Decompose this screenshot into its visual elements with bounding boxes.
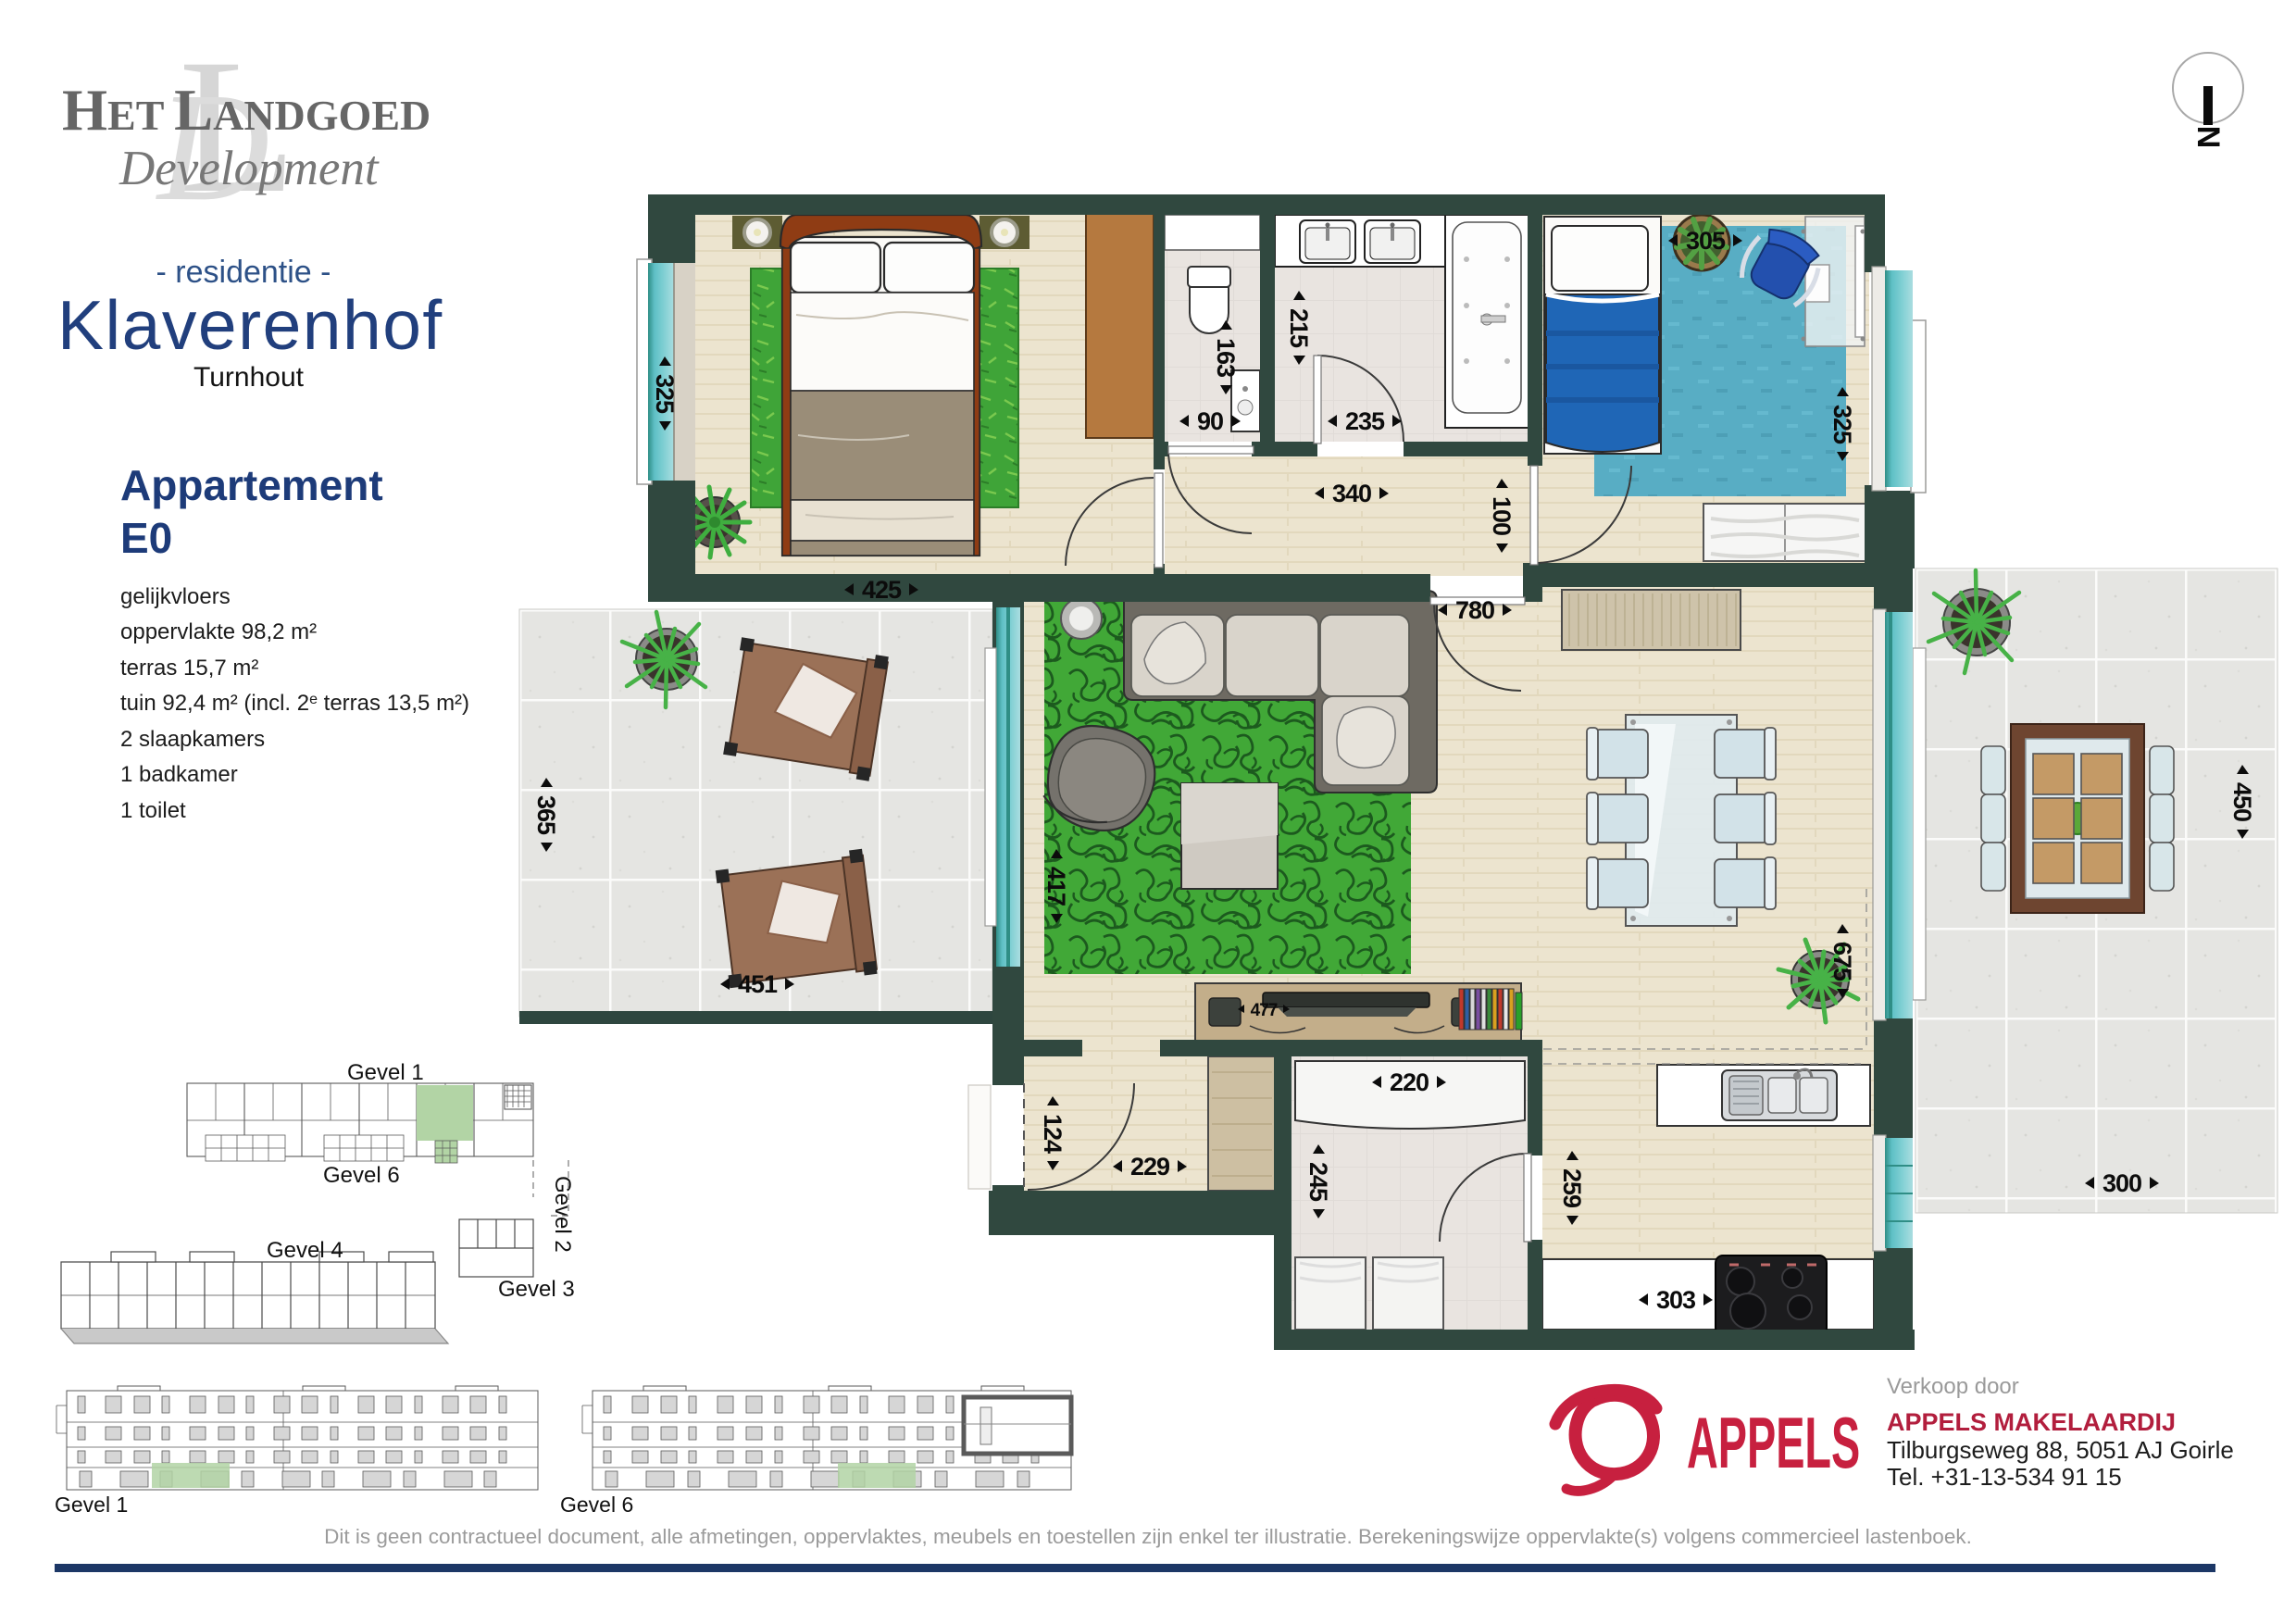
- svg-text:100: 100: [1488, 496, 1516, 535]
- svg-text:Gevel 2: Gevel 2: [550, 1176, 575, 1253]
- svg-text:477: 477: [1251, 1001, 1278, 1020]
- svg-text:451: 451: [738, 970, 778, 998]
- svg-text:oppervlakte 98,2 m²: oppervlakte 98,2 m²: [120, 619, 317, 644]
- svg-text:2 slaapkamers: 2 slaapkamers: [120, 727, 265, 752]
- svg-text:Development: Development: [119, 142, 380, 195]
- svg-text:780: 780: [1455, 596, 1494, 624]
- svg-text:terras 15,7 m²: terras 15,7 m²: [120, 656, 258, 681]
- svg-text:Gevel 4: Gevel 4: [267, 1238, 343, 1263]
- svg-text:1 toilet: 1 toilet: [120, 798, 186, 823]
- svg-text:Gevel 6: Gevel 6: [323, 1163, 400, 1188]
- svg-text:Dit is geen contractueel docum: Dit is geen contractueel document, alle …: [324, 1525, 1972, 1548]
- svg-text:365: 365: [532, 795, 560, 835]
- svg-text:325: 325: [651, 374, 679, 414]
- svg-text:Turnhout: Turnhout: [193, 362, 305, 393]
- svg-text:305: 305: [1686, 227, 1726, 255]
- svg-text:235: 235: [1345, 407, 1385, 435]
- svg-text:APPELS: APPELS: [1687, 1403, 1860, 1483]
- svg-text:tuin 92,4 m² (incl. 2e terras: tuin 92,4 m² (incl. 2e terras 13,5 m²): [120, 691, 469, 716]
- svg-text:215: 215: [1285, 308, 1313, 348]
- svg-text:425: 425: [862, 576, 902, 604]
- svg-text:340: 340: [1332, 480, 1371, 507]
- svg-text:Verkoop door: Verkoop door: [1887, 1374, 2019, 1399]
- svg-text:Gevel 1: Gevel 1: [347, 1060, 424, 1085]
- svg-text:450: 450: [2228, 782, 2256, 821]
- svg-text:300: 300: [2103, 1169, 2141, 1197]
- svg-text:Tel. +31-13-534 91 15: Tel. +31-13-534 91 15: [1887, 1463, 2122, 1491]
- svg-text:Appartement: Appartement: [120, 461, 383, 509]
- svg-text:675: 675: [1828, 942, 1856, 981]
- svg-text:Gevel 1: Gevel 1: [55, 1493, 128, 1517]
- svg-text:124: 124: [1039, 1114, 1067, 1154]
- svg-text:163: 163: [1212, 338, 1240, 378]
- svg-text:229: 229: [1130, 1153, 1170, 1181]
- svg-text:417: 417: [1042, 867, 1070, 906]
- svg-text:E0: E0: [120, 514, 172, 562]
- svg-text:Tilburgseweg 88, 5051 AJ Goirl: Tilburgseweg 88, 5051 AJ Goirle: [1887, 1436, 2234, 1464]
- svg-text:303: 303: [1656, 1286, 1696, 1314]
- svg-text:- residentie -: - residentie -: [156, 255, 331, 290]
- svg-text:325: 325: [1828, 405, 1856, 444]
- svg-text:N: N: [2190, 126, 2226, 149]
- svg-text:220: 220: [1390, 1068, 1429, 1096]
- svg-text:245: 245: [1304, 1162, 1332, 1202]
- svg-text:Gevel 6: Gevel 6: [560, 1493, 633, 1517]
- svg-text:259: 259: [1558, 1168, 1586, 1208]
- svg-text:90: 90: [1197, 407, 1223, 435]
- svg-text:Klaverenhof: Klaverenhof: [57, 286, 443, 364]
- svg-text:gelijkvloers: gelijkvloers: [120, 584, 231, 609]
- svg-text:Gevel 3: Gevel 3: [498, 1277, 575, 1302]
- svg-text:1 badkamer: 1 badkamer: [120, 762, 238, 787]
- svg-text:APPELS MAKELAARDIJ: APPELS MAKELAARDIJ: [1887, 1408, 2176, 1436]
